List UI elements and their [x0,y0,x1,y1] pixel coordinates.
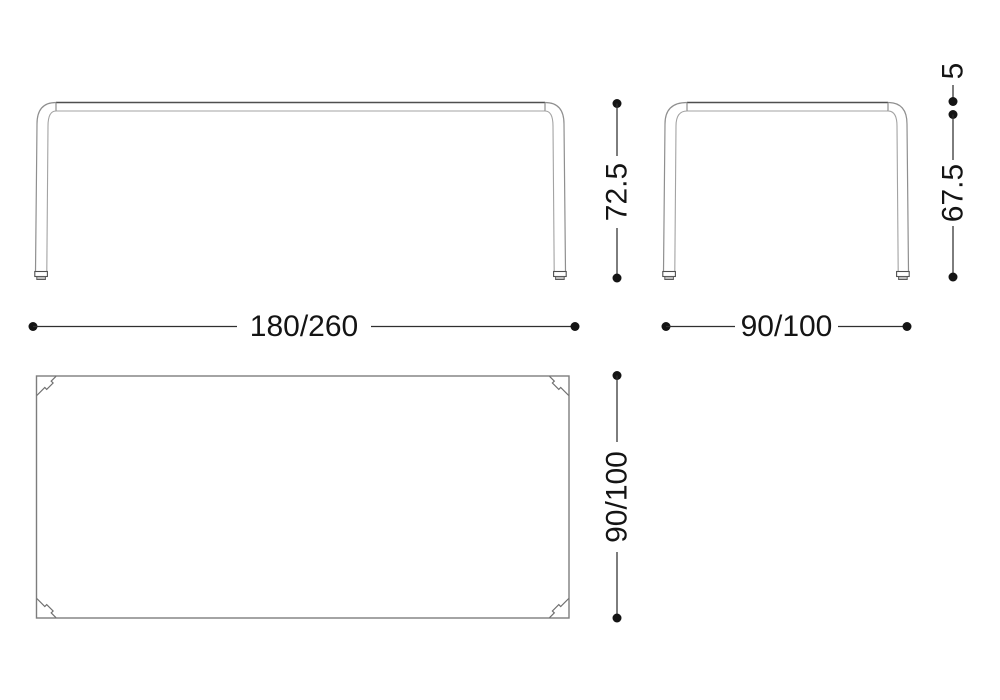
plan-corner-mark-top-left [37,376,56,395]
front-left-foot [35,272,48,277]
plan-corner-mark-top-right [550,376,569,395]
dimension-side-top-thickness: 5 [937,63,970,106]
front-left-leg [35,103,56,280]
side-left-leg [663,103,687,280]
dim-dot [949,97,958,106]
dimension-plan-depth: 90/100 [601,371,634,623]
plan-corner-leg-marks [37,376,569,617]
dim-dot [613,614,622,623]
technical-drawing-canvas: 72.5 180/260 5 67.5 90/100 90/100 [0,0,1000,700]
side-left-foot [663,272,676,277]
front-view [35,103,566,280]
front-right-foot [554,272,567,277]
front-tabletop [56,103,545,112]
plan-corner-mark-bottom-right [550,599,569,618]
dimension-side-width: 90/100 [662,310,912,343]
side-width-label: 90/100 [741,310,833,343]
plan-view [37,376,570,618]
side-leg-height-label: 67.5 [937,164,970,222]
side-view [663,103,909,280]
front-width-label: 180/260 [250,310,358,343]
plan-depth-label: 90/100 [601,451,634,543]
side-top-thickness-label: 5 [937,63,970,80]
dim-dot [571,322,580,331]
plan-corner-mark-bottom-left [37,599,56,618]
side-right-leg [888,103,909,280]
front-right-leg [545,103,566,280]
plan-tabletop-outline [37,376,570,618]
dim-dot [949,273,958,282]
dim-dot [613,274,622,283]
front-height-label: 72.5 [601,163,634,221]
dimension-side-leg-height: 67.5 [937,110,970,282]
dimension-front-width: 180/260 [29,310,580,343]
side-right-foot [897,272,910,277]
dim-dot [903,322,912,331]
side-tabletop [687,103,888,112]
dimension-front-height: 72.5 [601,99,634,283]
